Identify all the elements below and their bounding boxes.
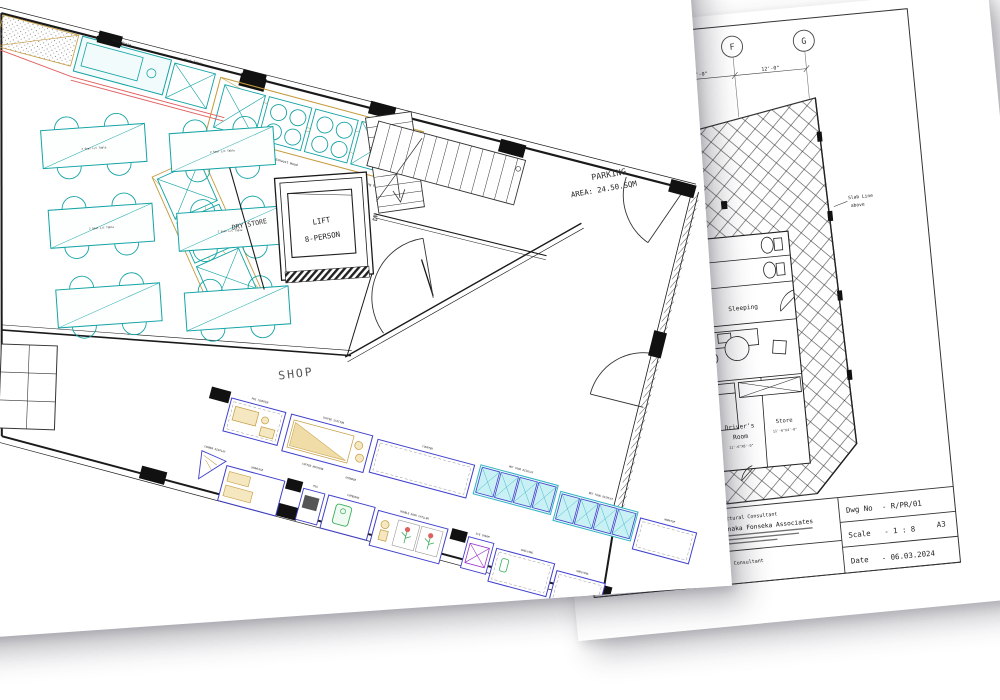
dim-fg: 12'-0" [761, 65, 780, 73]
parking-label: PARKING [590, 166, 626, 182]
front-floor-plan: Wash Basin Work Table Exhaust Hood Cooki… [0, 0, 732, 643]
fixture-label: ICE CREAM [475, 531, 490, 539]
date-value: - 06.03.2024 [881, 549, 936, 563]
kitchen-label-exhaust-hood: Exhaust Hood [275, 157, 298, 167]
stairs-dn-label: DN [372, 213, 380, 222]
fixture-label: CORNER DISPLAY [204, 444, 227, 454]
grid-label-g: G [801, 36, 807, 46]
fixture-label: SHELVING [520, 548, 534, 555]
fixture-label: SHOWCASE [251, 465, 265, 472]
fixture-label: POS [313, 484, 319, 489]
fixture-label: SHELVING [576, 569, 590, 576]
slab-note-line1: Slab Line [848, 193, 874, 201]
fixture-label: COUNTER [422, 444, 434, 451]
slab-note: Slab Line above [833, 193, 874, 211]
fixture-sublabel: GRINDER [345, 475, 357, 482]
date-label: Date [850, 555, 869, 566]
kitchen-door [368, 238, 436, 334]
fixture-label: POS COUNTER [251, 396, 269, 404]
kitchen-label-work-table: Work Table [184, 57, 204, 66]
fixture-label: CUPBOARD [347, 493, 361, 500]
shop-corner-table [0, 344, 57, 430]
shop-label: SHOP [277, 364, 314, 382]
sheet-size: A3 [936, 519, 946, 529]
hot-food-display [473, 465, 558, 515]
parking-area-label: AREA: 24.50.SQM [570, 179, 638, 200]
fixture-sublabel: COFFEE MACHINE [302, 462, 325, 472]
grid-label-f: F [729, 41, 735, 51]
drawing-sheet-front: Wash Basin Work Table Exhaust Hood Cooki… [0, 0, 732, 643]
drivers-room-label-2: Room [733, 433, 749, 441]
slab-note-line2: above [851, 202, 866, 209]
lift: LIFT 8-PERSON [275, 172, 374, 283]
scale-value: - 1 : 8 [884, 524, 916, 536]
dwg-no-label: Dwg No [846, 503, 873, 515]
dwg-no-value: - R/PR/01 [881, 499, 922, 512]
fixture-label: WORKTOP [664, 517, 676, 524]
scale-label: Scale [848, 529, 872, 540]
desk-background: D E F G 12'-0" 12'-0" Slab Line above [0, 0, 1000, 700]
